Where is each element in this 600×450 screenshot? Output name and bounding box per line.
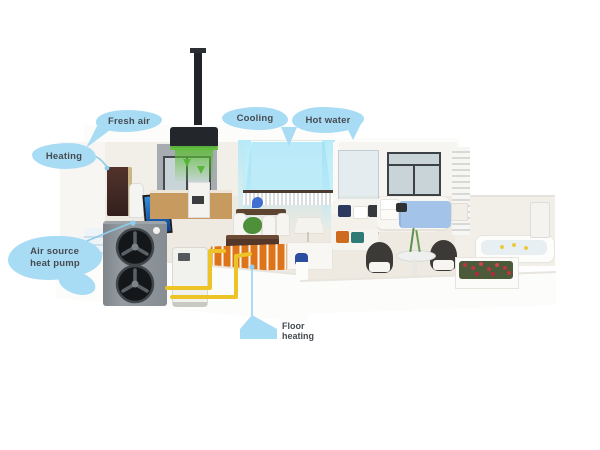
yellow-pipes <box>167 251 250 297</box>
location-dot-icon <box>249 264 254 269</box>
down-arrow-icon <box>183 159 205 174</box>
callout-cooling-label: Cooling <box>237 113 274 124</box>
fan-icon <box>117 266 153 302</box>
callout-heat-pump-line2: heat pump <box>30 258 80 270</box>
callout-floor-heating-label: Floor heating <box>282 321 326 342</box>
lines-overlay <box>0 0 600 450</box>
callout-heat-pump-label: Air source heat pump <box>30 246 80 270</box>
callout-heat-pump-line1: Air source <box>30 246 80 258</box>
callout-hot-water-label: Hot water <box>305 115 350 126</box>
callout-pointer <box>281 127 297 146</box>
fan-icon <box>117 229 153 265</box>
heat-pump-house-illustration: Fresh air Cooling Hot water Heating Air … <box>0 0 600 450</box>
callout-heating-label: Heating <box>46 151 82 162</box>
location-dot-icon <box>130 220 135 225</box>
up-arrow-icon <box>240 315 277 339</box>
callout-fresh-air-label: Fresh air <box>108 116 150 127</box>
location-dot-icon <box>105 166 110 171</box>
callout-heating: Heating <box>32 143 96 169</box>
